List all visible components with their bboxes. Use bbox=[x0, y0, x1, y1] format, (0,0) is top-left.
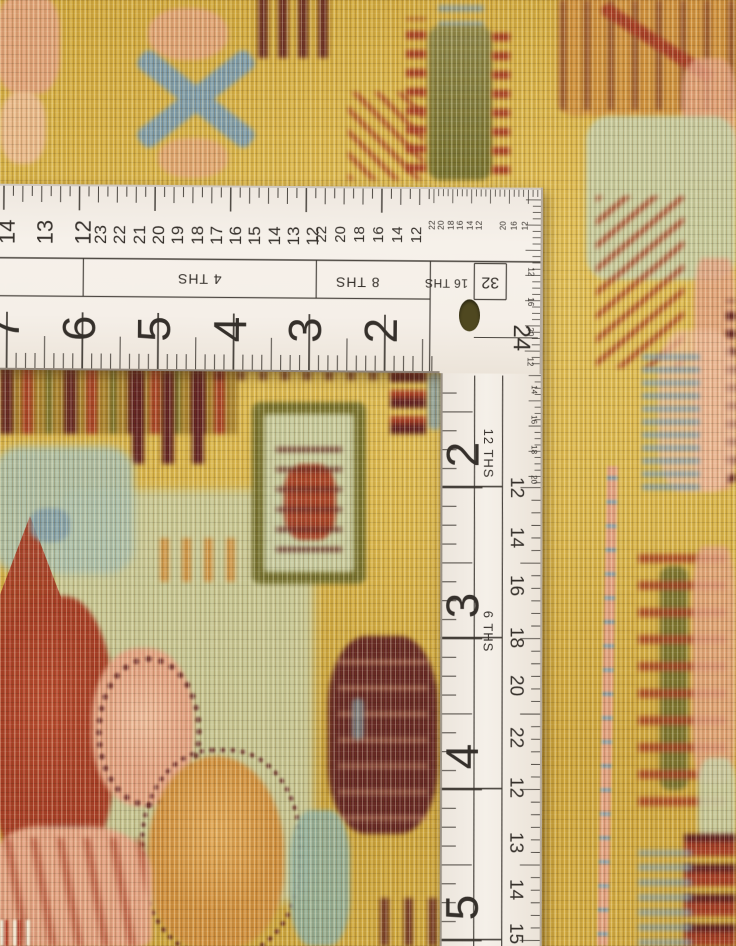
ruler-label-4ths: 4 THS bbox=[177, 272, 222, 286]
ruler-number: 14 bbox=[507, 527, 526, 548]
ruler-number: 5 bbox=[439, 895, 485, 921]
ruler-number: 23 bbox=[92, 225, 109, 244]
ruler-number: 12 bbox=[507, 477, 526, 498]
ruler-number: 12 bbox=[526, 267, 534, 276]
rug-motif-pink-sprig-top-left2 bbox=[0, 92, 46, 164]
ruler-number: 17 bbox=[208, 226, 225, 245]
ruler-number: 7 bbox=[0, 315, 26, 341]
ruler-number: 16 bbox=[530, 415, 538, 424]
ruler-number: 16 bbox=[227, 226, 244, 245]
ruler-number: 14 bbox=[530, 385, 538, 394]
ruler-number: 20 bbox=[526, 327, 534, 336]
ruler-number: 2 bbox=[440, 442, 486, 468]
ruler-number: 12 bbox=[526, 357, 534, 366]
ruler-number: 21 bbox=[131, 225, 148, 244]
ruler-number: 18 bbox=[352, 226, 367, 243]
l-square-ruler: 12 THS 6 THS 234512141618202212131415141… bbox=[0, 184, 550, 946]
rug-motif-olive-column-top bbox=[428, 26, 492, 180]
ruler-number: 2 bbox=[358, 318, 404, 344]
ruler-number: 3 bbox=[282, 317, 328, 343]
ruler-label-32: 32 bbox=[481, 273, 499, 289]
ruler-number: 20 bbox=[333, 226, 348, 243]
ruler-number: 5 bbox=[131, 316, 177, 342]
rug-motif-salmon-right-lower bbox=[692, 546, 736, 784]
ruler-number: 20 bbox=[500, 221, 508, 230]
ruler-number: 16 bbox=[511, 221, 519, 230]
ruler-number: 12 bbox=[409, 227, 424, 244]
ruler-number: 12 bbox=[475, 221, 484, 231]
ruler-number: 12 bbox=[522, 221, 530, 230]
ruler-number: 14 bbox=[506, 879, 525, 900]
rug-motif-salmon-spot2 bbox=[158, 138, 228, 178]
ruler-number: 14 bbox=[266, 226, 283, 245]
ruler-number: 16 bbox=[526, 297, 534, 306]
rug-motif-blue-flower-bottom-right bbox=[638, 850, 692, 946]
rug-motif-red-specks-right-of-olive bbox=[492, 28, 510, 174]
ruler-label-8ths: 8 THS bbox=[335, 275, 380, 289]
ruler-number: 20 bbox=[507, 675, 526, 696]
ruler-number: 16 bbox=[456, 221, 465, 231]
rug-motif-pink-sprig-top-left bbox=[0, 0, 60, 94]
rug-photo: 12 THS 6 THS 234512141618202212131415141… bbox=[0, 0, 736, 946]
ruler-hang-hole bbox=[459, 299, 480, 331]
ruler-number: 13 bbox=[285, 226, 302, 245]
ruler-number: 4 bbox=[439, 744, 485, 770]
ruler-label-16ths: 16 THS bbox=[424, 277, 468, 289]
ruler-number: 22 bbox=[507, 727, 526, 748]
ruler-number: 16 bbox=[371, 226, 386, 243]
ruler-number: 18 bbox=[530, 445, 538, 454]
rug-motif-blue-cross bbox=[118, 28, 268, 166]
ruler-number: 19 bbox=[169, 226, 186, 245]
ruler-number: 18 bbox=[507, 627, 526, 648]
ruler-number: 6 bbox=[55, 315, 101, 341]
ruler-number: 20 bbox=[529, 475, 537, 484]
ruler-number: 20 bbox=[150, 225, 167, 244]
ruler-number: 18 bbox=[189, 226, 206, 245]
ruler-number: 13 bbox=[35, 220, 57, 245]
rug-motif-blue-sprig-right bbox=[642, 348, 700, 490]
ruler-number: 22 bbox=[111, 225, 128, 244]
ruler-number: 13 bbox=[506, 832, 525, 853]
rug-motif-maroon-top bbox=[258, 0, 338, 58]
ruler-number: 22 bbox=[314, 226, 329, 243]
ruler-number: 16 bbox=[507, 575, 526, 596]
ruler-number: 20 bbox=[437, 220, 446, 230]
ruler-number: 15 bbox=[506, 923, 525, 944]
ruler-number: 14 bbox=[390, 226, 405, 243]
ruler-horizontal-arm: 4 THS 8 THS 16 THS 32 24 141312232221201… bbox=[0, 184, 543, 374]
ruler-number: 3 bbox=[439, 593, 485, 619]
rug-motif-red-zigzag-top bbox=[348, 92, 424, 180]
ruler-number: 14 bbox=[0, 219, 19, 244]
rug-motif-pink-line-right bbox=[597, 466, 618, 946]
rug-motif-salmon-spot bbox=[148, 8, 228, 60]
ruler-number: 12 bbox=[506, 777, 525, 798]
ruler-number: 4 bbox=[207, 317, 253, 343]
ruler-number: 15 bbox=[246, 226, 263, 245]
